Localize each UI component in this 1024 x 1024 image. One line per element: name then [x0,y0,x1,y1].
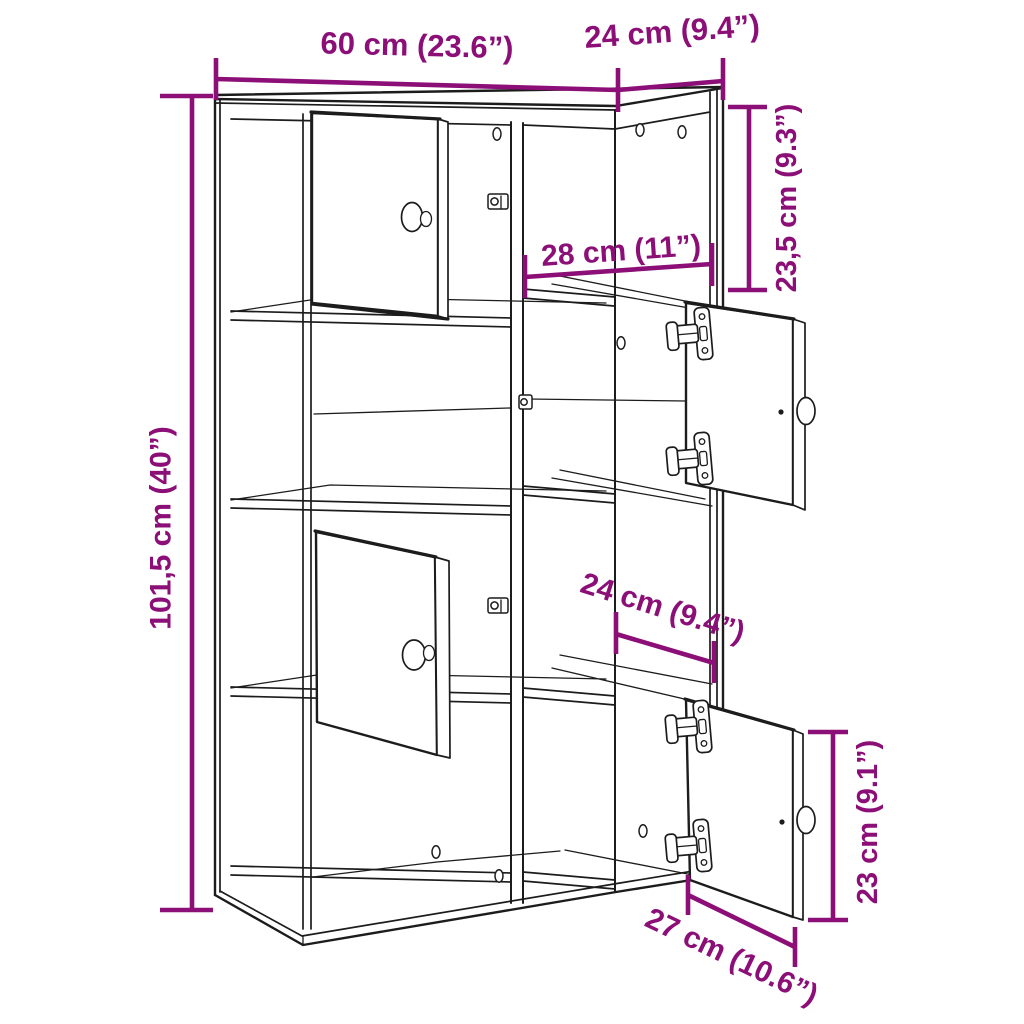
dimension-depth: 24 cm (9.4”) [583,8,761,100]
door-edge [435,557,450,758]
dimension-door-height: 23 cm (9.1”) [808,732,884,920]
shelf-pin-hole [493,128,501,140]
bookcase-drawing [215,87,815,945]
door-edge [438,119,448,319]
door-knob-tip [424,646,435,661]
cam-lock [488,598,508,613]
dimension-label-door-height: 23 cm (9.1”) [852,740,884,904]
door-knob-tip [421,212,432,227]
shelf-pin-hole [639,825,647,837]
dimension-height: 101,5 cm (40”) [145,96,214,910]
door-middle-right [665,302,815,510]
shelf-pin-hole [495,870,503,882]
shelf-pin-hole [678,126,686,138]
dimension-top-compartment-height: 23,5 cm (9.3”) [728,104,803,293]
dimension-diagram: 60 cm (23.6”) 24 cm (9.4”) 101,5 cm (40”… [0,0,1024,1024]
shelf-pin-hole [617,337,625,349]
dimension-label-depth: 24 cm (9.4”) [583,8,761,55]
dimension-label-top-compartment-height: 23,5 cm (9.3”) [771,104,803,293]
door-knob [403,640,426,670]
shelf-pin-hole [636,124,644,136]
cam-lock [488,194,508,209]
door-knob-screw [778,409,783,414]
center-divider [511,122,523,903]
door-knob [797,807,815,834]
door-top-left [311,112,448,319]
cam-lock [519,395,532,409]
door-knob [797,398,815,425]
cabinet-carcass [215,87,723,945]
door-knob [402,203,423,232]
diagram-svg: 60 cm (23.6”) 24 cm (9.4”) 101,5 cm (40”… [0,0,1024,1024]
door-knob-screw [779,819,784,824]
door-lower-left [315,531,450,758]
dimension-label-height: 101,5 cm (40”) [145,426,178,629]
dimension-label-width: 60 cm (23.6”) [320,25,514,65]
shelf-pin-hole [432,846,440,858]
